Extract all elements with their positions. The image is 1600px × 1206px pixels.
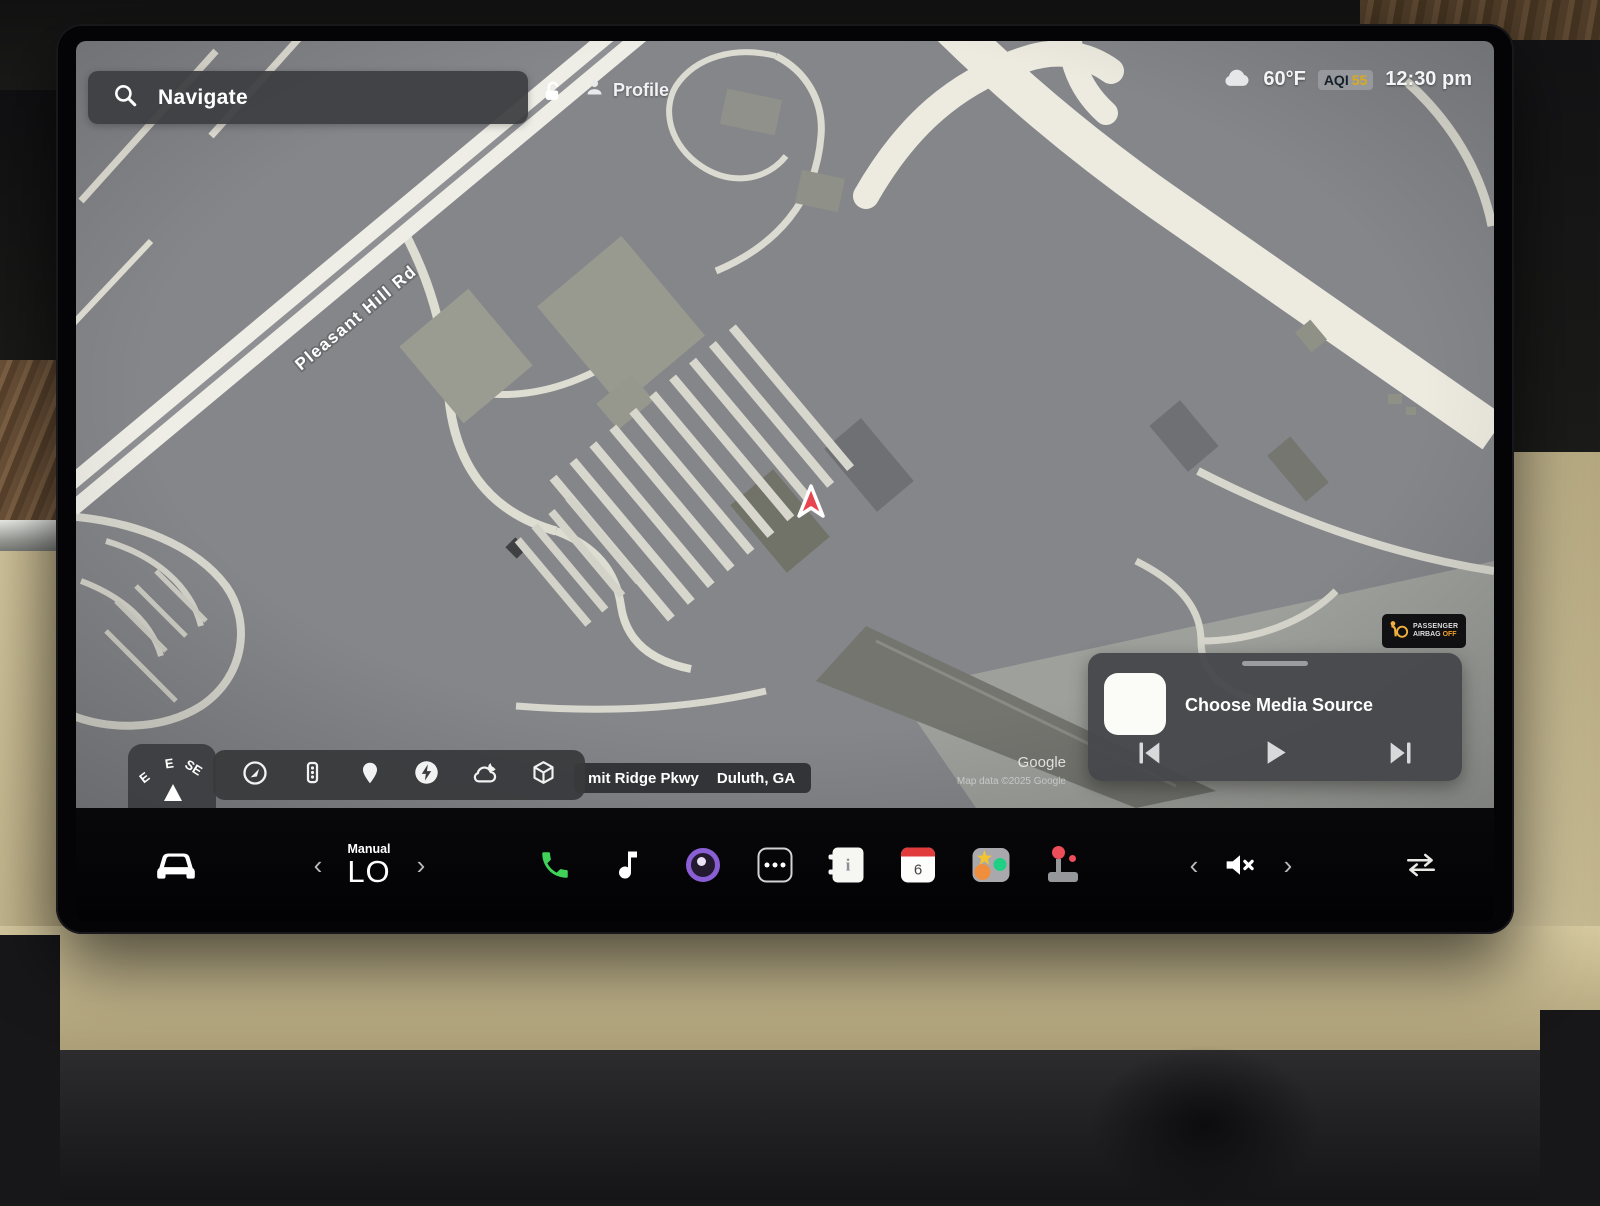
climate-temp-value: LO [347, 856, 390, 888]
traffic-light-icon[interactable] [299, 759, 326, 791]
dash-corner-left [0, 935, 60, 1200]
cube-3d-icon[interactable] [530, 759, 557, 791]
console-shadow [1090, 1046, 1320, 1206]
dash-corner-right [1540, 1010, 1600, 1200]
globe-icon[interactable] [241, 759, 269, 792]
phone-icon[interactable] [538, 848, 572, 882]
weather-icon[interactable] [471, 759, 500, 791]
aqi-label: AQI [1324, 72, 1349, 88]
compass-letter: E [164, 755, 175, 771]
profile-button[interactable]: Profile [584, 77, 669, 103]
compass-arrow-icon [164, 784, 182, 801]
car-controls-button[interactable] [153, 849, 199, 881]
climate-control[interactable]: Manual LO [347, 842, 390, 888]
aqi-badge[interactable]: AQI 55 [1318, 70, 1373, 90]
volume-up-chevron[interactable]: › [1284, 855, 1293, 875]
map-controls-pill [213, 750, 585, 800]
dash-side-right [1500, 40, 1600, 460]
more-apps-icon[interactable] [758, 848, 793, 883]
unlock-icon[interactable] [540, 79, 565, 109]
profile-icon [584, 77, 605, 103]
temp-increase-chevron[interactable]: › [417, 855, 426, 875]
compass-letter: SE [182, 757, 205, 779]
music-icon[interactable] [610, 847, 646, 883]
mute-icon[interactable] [1223, 852, 1257, 879]
camera-icon[interactable] [686, 848, 720, 882]
calendar-icon[interactable]: 6 [901, 848, 935, 883]
dash-beige-bottom [0, 926, 1600, 1054]
next-track-icon[interactable] [1386, 740, 1414, 771]
toybox-icon[interactable] [973, 848, 1010, 882]
temp-decrease-chevron[interactable]: ‹ [314, 855, 323, 875]
arcade-icon[interactable] [1043, 846, 1083, 884]
clock: 12:30 pm [1385, 68, 1472, 91]
album-art-placeholder[interactable] [1104, 673, 1166, 735]
navigate-search-bar[interactable]: Navigate [88, 71, 528, 124]
airbag-status: OFF [1443, 631, 1457, 638]
play-icon[interactable] [1263, 739, 1288, 771]
passenger-airbag-badge: PASSENGER AIRBAG OFF [1382, 614, 1466, 648]
location-pin-icon[interactable] [357, 760, 383, 791]
media-source-title[interactable]: Choose Media Source [1185, 695, 1373, 716]
display: Pleasant Hill Rd Google Map data ©2025 G… [76, 41, 1494, 922]
current-location-bar[interactable]: mit Ridge Pkwy Duluth, GA [574, 763, 811, 793]
profile-label: Profile [613, 80, 669, 101]
swap-arrows-icon[interactable] [1403, 852, 1439, 878]
temperature-readout: 60°F [1263, 68, 1305, 91]
touchscreen: Pleasant Hill Rd Google Map data ©2025 G… [56, 24, 1514, 934]
drag-handle[interactable] [1242, 661, 1308, 666]
street-label: mit Ridge Pkwy [588, 770, 699, 787]
aqi-value: 55 [1352, 72, 1368, 88]
city-label: Duluth, GA [717, 770, 795, 787]
status-cluster: 60°F AQI 55 12:30 pm [1222, 67, 1472, 92]
compass-letter: E [136, 769, 152, 786]
media-panel[interactable]: Choose Media Source [1088, 653, 1462, 781]
calendar-day: 6 [901, 857, 935, 883]
search-icon [112, 82, 138, 113]
airbag-line1: PASSENGER [1413, 623, 1458, 631]
dash-lower [0, 1050, 1600, 1200]
charging-icon[interactable] [413, 759, 440, 791]
cloud-icon [1222, 67, 1251, 92]
volume-down-chevron[interactable]: ‹ [1190, 855, 1199, 875]
search-placeholder: Navigate [158, 86, 248, 110]
notes-icon[interactable]: i [833, 848, 864, 883]
previous-track-icon[interactable] [1136, 740, 1164, 771]
app-dock: ‹ Manual LO › i 6 [76, 808, 1494, 922]
airbag-icon [1387, 618, 1409, 645]
airbag-line2: AIRBAG [1413, 631, 1441, 638]
